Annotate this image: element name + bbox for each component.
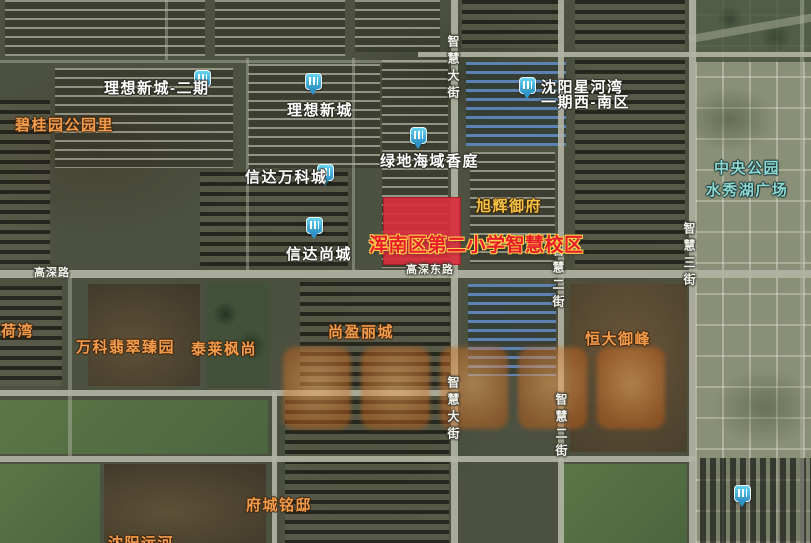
terrain-block <box>700 458 811 543</box>
map-canvas[interactable]: 浑南区第二小学智慧校区 智慧大街 智慧大街 智慧二街 智慧二街 智慧三街 高深路… <box>0 0 811 543</box>
watermark <box>283 347 665 429</box>
watermark-glyph <box>597 347 665 429</box>
street-label-gaoshen-donglu: 高深东路 <box>406 261 454 277</box>
poi-label-lixiang-xincheng-erqi: 理想新城-二期 <box>104 77 210 98</box>
poi-label-line: 一期西-南区 <box>541 95 630 110</box>
street-label-zhihui-dajie: 智慧大街 <box>445 35 462 103</box>
map-pin-icon[interactable] <box>306 217 323 234</box>
terrain-block <box>5 0 205 56</box>
map-pin-icon[interactable] <box>410 127 427 144</box>
terrain-block <box>0 400 268 454</box>
terrain-block <box>462 0 562 48</box>
poi-label-line: 中央公园 <box>697 158 797 180</box>
road <box>418 52 811 57</box>
street-label-zhihui-erjie: 智慧二街 <box>553 393 570 461</box>
watermark-glyph <box>361 347 429 429</box>
poi-label-tailai-fengshang: 泰莱枫尚 <box>191 338 257 359</box>
poi-label-line: 水秀湖广场 <box>697 180 797 202</box>
terrain-block <box>88 284 200 386</box>
poi-label-xinda-wankecheng: 信达万科城 <box>245 166 328 187</box>
watermark-glyph <box>283 347 351 429</box>
road <box>68 276 72 456</box>
street-label-gaoshen-lu: 高深路 <box>34 264 70 280</box>
poi-label-xinda-shangcheng: 信达尚城 <box>286 243 352 264</box>
poi-label-shenyang-xinghewan: 沈阳星河湾 一期西-南区 <box>541 80 630 110</box>
building-icon <box>738 489 747 497</box>
road <box>272 392 277 543</box>
road <box>800 0 804 543</box>
road <box>165 0 168 60</box>
map-pin-icon[interactable] <box>305 73 322 90</box>
road <box>0 60 450 63</box>
terrain-block <box>206 282 270 388</box>
poi-label-zhongyang-gongyuan: 中央公园 水秀湖广场 <box>697 158 797 202</box>
terrain-block <box>575 0 685 50</box>
building-icon <box>414 131 423 139</box>
poi-label-fucheng-mingdi: 府城铭邸 <box>246 494 312 515</box>
road <box>352 58 355 270</box>
poi-label-shenyang-yunhe: 沈阳运河 <box>108 532 174 543</box>
poi-label-lixiang-xincheng: 理想新城 <box>287 99 353 120</box>
road <box>0 456 695 462</box>
street-label-zhihui-dajie: 智慧大街 <box>445 376 462 444</box>
building-icon <box>309 77 318 85</box>
poi-label-hengda-yufeng: 恒大御峰 <box>585 328 651 349</box>
building-icon <box>310 221 319 229</box>
terrain-block <box>0 464 100 543</box>
poi-label-lvdi-haiyu-xiangting: 绿地海域香庭 <box>380 150 479 171</box>
poi-label-xuhui-yufu: 旭辉御府 <box>476 195 542 216</box>
terrain-block <box>560 464 687 543</box>
terrain-block <box>355 0 440 52</box>
map-pin-icon[interactable] <box>519 77 536 94</box>
road <box>246 58 249 270</box>
poi-label-shangying-licheng: 尚盈丽城 <box>328 321 394 342</box>
poi-label-wanke-feicui-zhenyuan: 万科翡翠臻园 <box>76 336 175 357</box>
building-icon <box>523 81 532 89</box>
poi-label-hewan: 荷湾 <box>1 320 34 341</box>
terrain-block <box>215 0 345 56</box>
poi-label-line: 沈阳星河湾 <box>541 80 630 95</box>
map-pin-icon[interactable] <box>734 485 751 502</box>
street-label-zhihui-sanjie: 智慧三街 <box>681 222 698 290</box>
school-label: 浑南区第二小学智慧校区 <box>369 230 584 257</box>
poi-label-biguiyuan-gongyuanli: 碧桂园公园里 <box>15 114 114 135</box>
